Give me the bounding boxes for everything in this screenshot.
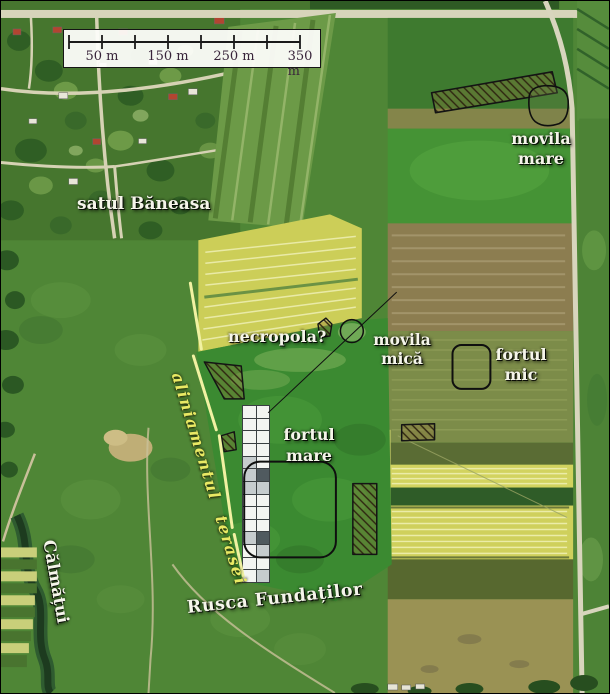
grid-cell bbox=[243, 532, 256, 544]
grid-cell bbox=[243, 406, 256, 418]
aerial-site-map: satul Băneasa movila mare necropola? mov… bbox=[0, 0, 610, 694]
grid-cell bbox=[243, 545, 256, 557]
grid-cell bbox=[243, 507, 256, 519]
grid-cell bbox=[257, 482, 270, 494]
top-road bbox=[1, 10, 609, 18]
label-movila-mica: movila mică bbox=[368, 330, 436, 368]
grid-cell bbox=[243, 457, 256, 469]
label-movila-mare: movila mare bbox=[505, 129, 577, 169]
excavation-grid bbox=[242, 405, 270, 583]
label-necropola: necropola? bbox=[228, 327, 326, 346]
grid-cell bbox=[257, 532, 270, 544]
grid-cell bbox=[257, 570, 270, 582]
grid-cell bbox=[257, 558, 270, 570]
grid-cell bbox=[243, 419, 256, 431]
grid-cell bbox=[243, 469, 256, 481]
grid-cell bbox=[243, 482, 256, 494]
grid-cell bbox=[257, 457, 270, 469]
grid-cell bbox=[257, 495, 270, 507]
label-fortul-mic: fortul mic bbox=[491, 345, 551, 385]
grid-cell bbox=[257, 520, 270, 532]
grid-cell bbox=[243, 495, 256, 507]
label-village: satul Băneasa bbox=[77, 194, 210, 214]
grid-cell bbox=[243, 520, 256, 532]
grid-cell bbox=[257, 406, 270, 418]
grid-cell bbox=[257, 419, 270, 431]
scale-label-250: 250 m bbox=[213, 49, 254, 64]
grid-cell bbox=[257, 507, 270, 519]
grid-cell bbox=[243, 431, 256, 443]
scale-bar: 50 m 150 m 250 m 350 m bbox=[63, 29, 321, 68]
grid-cell bbox=[257, 431, 270, 443]
scale-label-50: 50 m bbox=[85, 49, 118, 64]
grid-cell bbox=[257, 444, 270, 456]
grid-cell bbox=[243, 444, 256, 456]
scale-label-350: 350 m bbox=[288, 49, 313, 79]
grid-cell bbox=[257, 545, 270, 557]
scale-label-150: 150 m bbox=[147, 49, 188, 64]
label-fortul-mare: fortul mare bbox=[276, 424, 342, 466]
grid-cell bbox=[257, 469, 270, 481]
